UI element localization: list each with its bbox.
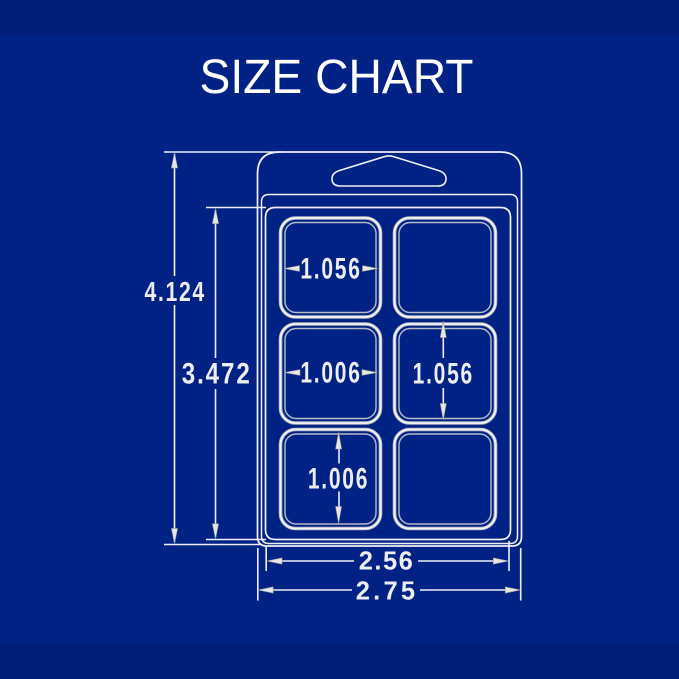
svg-text:3.472: 3.472	[182, 357, 252, 390]
svg-text:1.056: 1.056	[413, 358, 474, 390]
svg-text:1.056: 1.056	[300, 253, 361, 285]
svg-text:SIZE CHART: SIZE CHART	[200, 50, 474, 104]
svg-text:2.75: 2.75	[356, 578, 418, 606]
svg-text:4.124: 4.124	[145, 277, 206, 307]
svg-text:1.006: 1.006	[300, 357, 361, 389]
svg-text:1.006: 1.006	[308, 463, 369, 495]
svg-text:2.56: 2.56	[359, 548, 415, 576]
